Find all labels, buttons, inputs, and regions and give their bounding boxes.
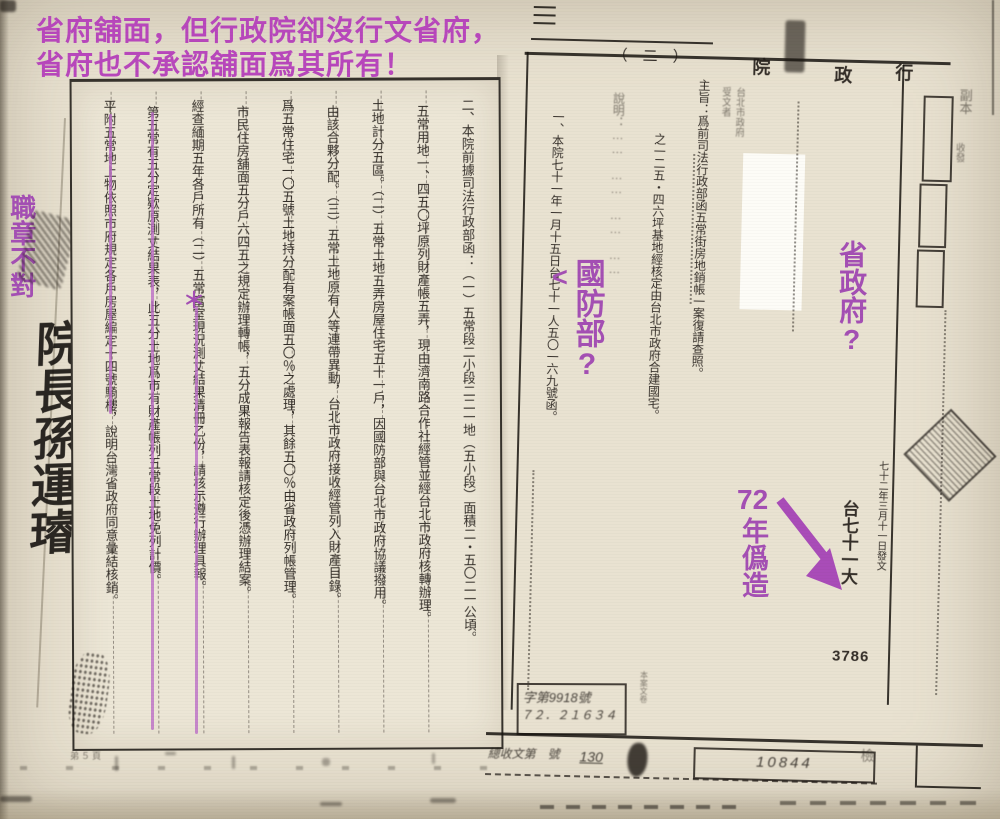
dotted-leader (935, 310, 946, 695)
annotation-star: ＊ (183, 283, 205, 315)
left-document-page: 二、本院前據司法行政部函：（一）五常段二小段二二一地（五小段）面積二・五〇二一公… (70, 77, 504, 751)
dispatch-number: 10844 (695, 752, 873, 773)
ink-blot (627, 743, 648, 777)
margin-cell (922, 96, 954, 183)
bleed-mark (322, 758, 330, 766)
bottom-dash (0, 796, 32, 802)
header-rule-main (525, 52, 951, 65)
left-edge-shadow (0, 0, 9, 819)
text-column: 第五常有五分定欵原測丈結果表，此五分土地爲市有財產帳列五常段土地免列計價。 (129, 106, 162, 730)
date-column: 七十二年三月十一日發文 (871, 461, 894, 761)
right-document-page: 行 政 院 （ 二 ） 主旨：爲前司法行政部函五常街房地銷帳一案復請查照。 之一… (485, 0, 1000, 789)
text-column: 平附五常地上物依照市府規定各戶房屋編定十四號騎樓，說明台灣省政府同意彙結核銷。 (86, 100, 119, 730)
margin-cell (918, 183, 948, 248)
bottom-dash-row (540, 805, 740, 809)
margin-label: 副本 (957, 88, 973, 136)
page-left-border (511, 52, 529, 710)
bottom-rule (486, 732, 983, 747)
dotted-leader (527, 470, 534, 690)
bleed-mark (115, 756, 118, 771)
text-column: 市民住房舖面五分戶六四五之規定辦理轉帳，五分成果報告表報請核定後憑辦理結案。 (219, 105, 252, 729)
bottom-scribble: 總收文第 號 (488, 745, 560, 763)
tick-line (534, 14, 556, 17)
text-column: 土地計分五區。（二）五常土地五弄房屋住宅五十一戶，因國防部與台北市政府協議撥用。 (354, 99, 387, 729)
receipt-stamp-box: 字第9918號 ７２．２１６３４ (517, 683, 627, 735)
highlight-line (151, 112, 154, 730)
corner-stamp: 檢 (857, 748, 878, 778)
agency-name-char: 政 (834, 61, 853, 87)
bottom-dash (320, 802, 342, 806)
agency-name-char: 行 (895, 59, 914, 85)
page-marker: （ 二 ） (612, 44, 688, 67)
tiny-column: 本案文卷 (636, 671, 650, 727)
tick-line (533, 22, 555, 25)
bottom-dash-row (780, 801, 980, 805)
registry-stamp-smudge (784, 20, 805, 72)
text-column: 由該合夥分配。（三）五常土地原有人等連帶異動，台北市政府接收經管列入財產目錄。 (309, 105, 342, 729)
annotation-arrow-left: < (552, 262, 568, 293)
margin-label: 收發 (952, 142, 965, 178)
annotation-defense-ministry: 國防部? (568, 258, 605, 403)
footer-note: 弟５頁 (70, 749, 103, 762)
tick-line (534, 6, 556, 9)
highlight-line (109, 114, 112, 414)
corner-vline (915, 746, 918, 788)
agency-name-char: 院 (752, 53, 771, 79)
text-column: 二、本院前據司法行政部函：（一）五常段二小段二二一地（五小段）面積二・五〇二一公… (444, 98, 477, 728)
receipt-stamp-line1: 字第9918號 (523, 687, 625, 706)
text-column: 之一二五・四六坪基地經核定由台北市政府合建國宅。 (633, 133, 667, 464)
diamond-stamp (903, 409, 996, 502)
text-column: 經查緬期五年各戶所有（二）五常富室現況測丈結果清冊乙份，請核示遵行辦理具報。 (174, 99, 207, 729)
scanned-document: 省府舖面，但行政院卻沒行文省府， 省府也不承認舖面爲其所有！ 職章不對 院長孫運… (0, 0, 1000, 819)
bleed-mark (432, 753, 435, 764)
receipt-stamp-line2: ７２．２１６３４ (521, 706, 625, 723)
annotation-forgery-num: 72 (737, 484, 768, 516)
text-column: 主旨：爲前司法行政部函五常街房地銷帳一案復請查照。 (677, 79, 712, 430)
header-rule-thin (531, 38, 713, 44)
bleed-mark (165, 752, 176, 755)
margin-cell (916, 249, 945, 308)
recipient-label: 受文者 (717, 87, 731, 149)
bleed-marks-band (20, 766, 500, 770)
bleed-mark (232, 756, 235, 769)
text-column: 五常用地一、四五〇坪原列財產帳五弄，現由濟南路合作社經管並經台北市政府核轉辦理。 (399, 104, 432, 728)
bottom-dash (430, 798, 456, 803)
reference-number: 3786 (832, 647, 870, 665)
highlight-line (195, 306, 198, 734)
corner-mark (0, 0, 16, 12)
annotation-provincial-gov: 省政府? (834, 240, 868, 390)
annotation-forgery-text: 年僞造 (736, 517, 769, 637)
forgery-arrow-icon (772, 492, 858, 596)
receipt-number: 130 (579, 748, 603, 765)
text-column: 爲五常住宅一〇五號土地持分配有案帳面五〇％之處理，其餘五〇％由省政府列帳管理。 (264, 99, 297, 729)
